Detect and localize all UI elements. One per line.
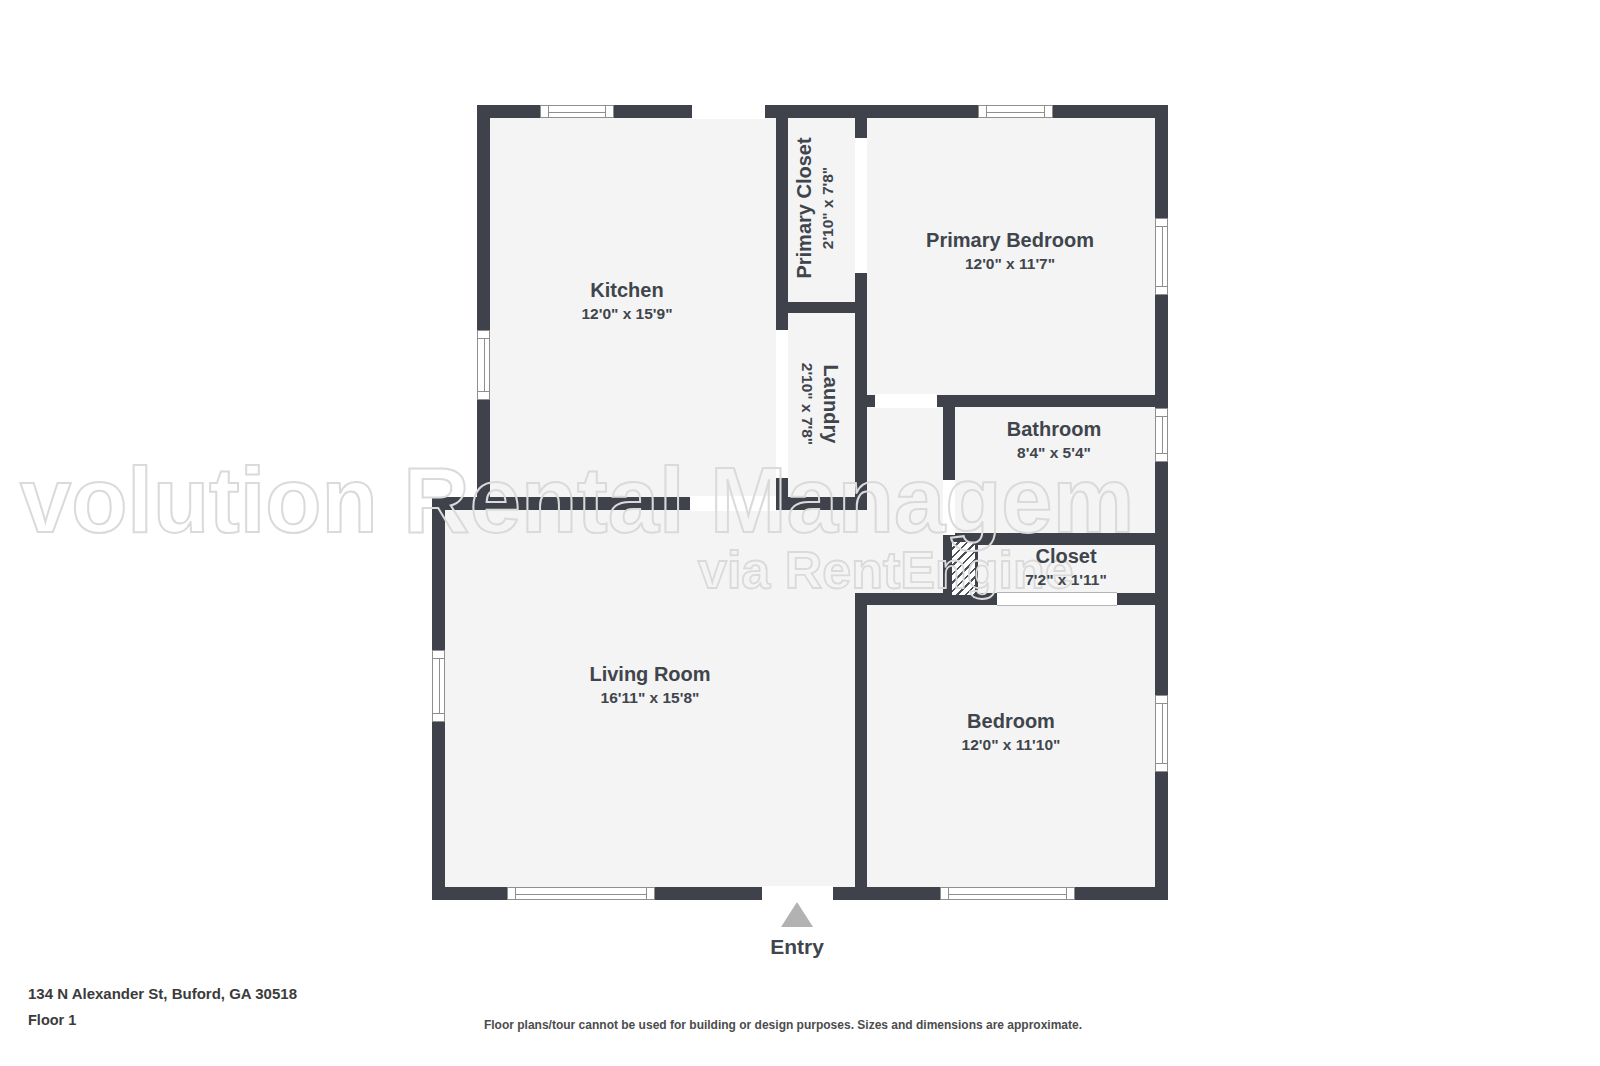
room-label-living-room: Living Room 16'11" x 15'8" xyxy=(589,663,710,706)
entry-label: Entry xyxy=(770,935,824,959)
kitchen-left-window xyxy=(477,330,490,400)
room-label-primary-closet: Primary Closet 2'10" x 7'8" xyxy=(793,137,836,278)
floor-plan: volution Rental Managem via RentEngine K… xyxy=(0,0,1600,1066)
living-room-left-window xyxy=(432,650,445,722)
room-dims: 8'4" x 5'4" xyxy=(1007,444,1101,461)
top-wall-opening xyxy=(692,104,765,119)
wall-living-bedroom-divider xyxy=(855,593,867,900)
room-name: Laundry xyxy=(820,363,842,445)
room-name: Primary Bedroom xyxy=(926,229,1094,251)
room-name: Bathroom xyxy=(1007,418,1101,440)
address: 134 N Alexander St, Buford, GA 30518 xyxy=(28,985,297,1002)
wall-primary-closet-bottom xyxy=(776,302,867,313)
floor-label: Floor 1 xyxy=(28,1012,76,1028)
primary-bedroom-right-window xyxy=(1155,218,1168,295)
disclaimer: Floor plans/tour cannot be used for buil… xyxy=(484,1018,1082,1032)
wall-primary-bedroom-bottom-right xyxy=(937,395,1168,407)
room-dims: 16'11" x 15'8" xyxy=(589,689,710,706)
room-dims: 7'2" x 1'11" xyxy=(1025,571,1107,588)
entry-door-opening xyxy=(762,886,833,901)
room-name: Closet xyxy=(1025,545,1107,567)
room-dims: 2'10" x 7'8" xyxy=(798,363,815,445)
room-dims: 2'10" x 7'8" xyxy=(819,137,836,278)
room-label-bathroom: Bathroom 8'4" x 5'4" xyxy=(1007,418,1101,461)
room-dims: 12'0" x 11'10" xyxy=(962,736,1061,753)
room-name: Living Room xyxy=(589,663,710,685)
living-room-bottom-window xyxy=(507,887,655,900)
room-label-kitchen: Kitchen 12'0" x 15'9" xyxy=(581,279,672,322)
bedroom-right-window xyxy=(1155,695,1168,772)
room-label-primary-bedroom: Primary Bedroom 12'0" x 11'7" xyxy=(926,229,1094,272)
room-name: Kitchen xyxy=(581,279,672,301)
kitchen-top-window xyxy=(540,105,614,118)
room-label-bedroom: Bedroom 12'0" x 11'10" xyxy=(962,710,1061,753)
room-label-laundry: Laundry 2'10" x 7'8" xyxy=(798,363,841,445)
room-dims: 12'0" x 15'9" xyxy=(581,305,672,322)
room-label-closet: Closet 7'2" x 1'11" xyxy=(1025,545,1107,588)
room-name: Primary Closet xyxy=(793,137,815,278)
primary-bedroom-top-window xyxy=(978,105,1053,118)
bedroom-bottom-window xyxy=(940,887,1075,900)
primary-bedroom-door-opening xyxy=(875,394,937,408)
watermark-line1: volution Rental Managem xyxy=(20,448,1134,553)
watermark-line2: via RentEngine xyxy=(698,540,1074,600)
primary-closet-door-opening xyxy=(855,138,867,273)
room-dims: 12'0" x 11'7" xyxy=(926,255,1094,272)
entry-arrow-icon xyxy=(781,902,813,927)
bathroom-right-window xyxy=(1155,408,1168,462)
room-name: Bedroom xyxy=(962,710,1061,732)
